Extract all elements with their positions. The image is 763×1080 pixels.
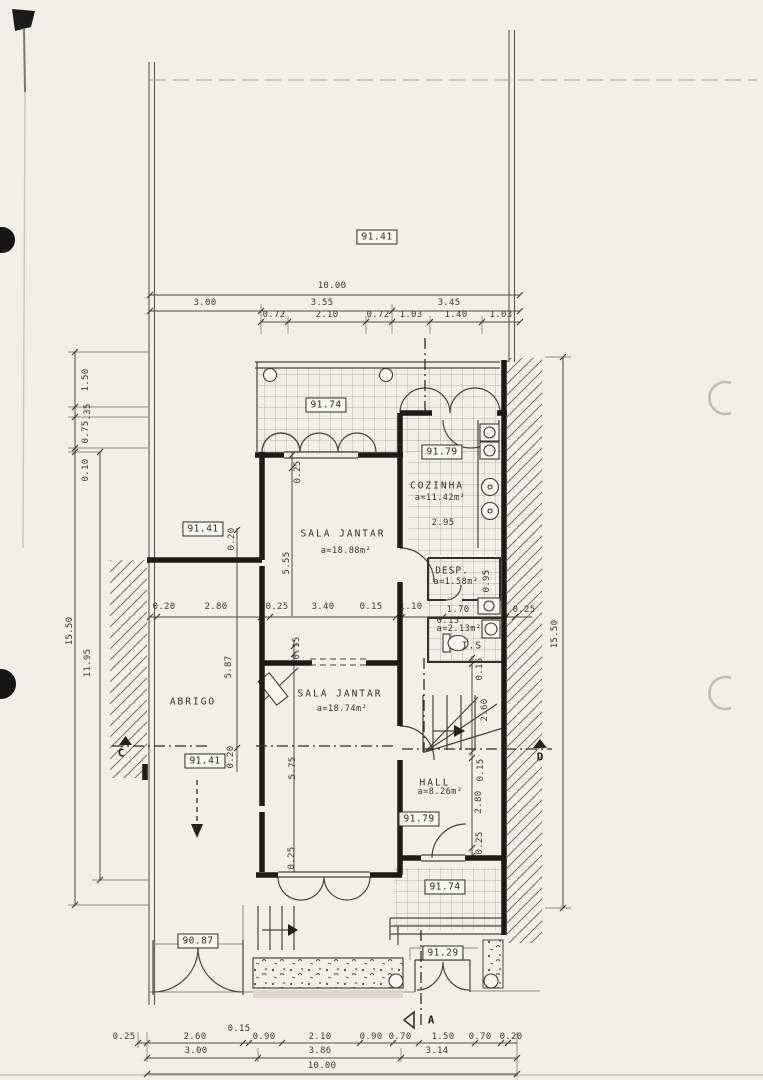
elevation-badge-kitchen: 91.79: [421, 445, 462, 460]
dim-label: 15.50: [65, 617, 75, 646]
floor-plan-drawing: [0, 0, 763, 1080]
dim-label: 0.20: [153, 602, 176, 612]
dim-label: 2.10: [309, 1032, 332, 1042]
dim-label: 1.10: [400, 602, 423, 612]
dim-label: 0.75: [81, 421, 91, 444]
dim-label: 3.45: [438, 298, 461, 308]
room-area-cozinha: a=11.42m²: [415, 493, 466, 503]
scan-artifacts: [0, 9, 763, 1075]
dim-label: 5.75: [288, 757, 298, 780]
elevation-badge-left-upper: 91.41: [182, 522, 223, 537]
dim-label: 0.10: [81, 459, 91, 482]
dim-label: 0.25: [266, 602, 289, 612]
dim-label: 2.95: [432, 518, 455, 528]
dim-label: 0.90: [253, 1032, 276, 1042]
dim-label: 3.00: [185, 1046, 208, 1056]
dim-label: 3.00: [194, 298, 217, 308]
dim-label: 0.25: [513, 605, 536, 615]
dim-label: 0.70: [389, 1032, 412, 1042]
dim-label: 0.15: [476, 759, 486, 782]
dim-label: 0.15: [228, 1024, 251, 1034]
dim-label: 11.95: [83, 649, 93, 678]
scanned-page: 91.41 91.74 91.79 91.41 91.41 91.79 91.7…: [0, 0, 763, 1080]
dim-label: 0.72: [367, 310, 390, 320]
elevation-badge-driveway: 90.87: [177, 934, 218, 949]
room-name-is: I.S: [462, 641, 482, 652]
dim-label: 0.90: [360, 1032, 383, 1042]
dim-label: 0.25: [293, 461, 303, 484]
dim-label: 0.20: [500, 1032, 523, 1042]
dim-label: 1.40: [445, 310, 468, 320]
section-marker-c: C: [118, 747, 125, 760]
elevation-badge-hall: 91.79: [398, 812, 439, 827]
dim-label: 0.20: [227, 528, 237, 551]
dim-label: 3.40: [312, 602, 335, 612]
room-name-cozinha: COZINHA: [410, 481, 464, 492]
dim-label: 0.70: [469, 1032, 492, 1042]
dim-label: 0.25: [475, 832, 485, 855]
dim-label: 1.03: [400, 310, 423, 320]
room-area-sala-upper: a=18.88m²: [321, 546, 372, 556]
dim-label: 5.55: [282, 552, 292, 575]
dim-label: 1.03: [490, 310, 513, 320]
dim-label: 2.10: [316, 310, 339, 320]
dim-label: 15.50: [550, 620, 560, 649]
room-area-hall: a=8.26m²: [418, 787, 463, 797]
dim-label: 0.20: [226, 746, 236, 769]
room-name-sala-upper: SALA JANTAR: [301, 529, 386, 540]
dim-label: 1.50: [81, 369, 91, 392]
dim-label: 0.15: [475, 658, 485, 681]
dim-label: 0.15: [360, 602, 383, 612]
room-area-sala-lower: a=18.74m²: [317, 704, 368, 714]
dim-label: 1.70: [447, 605, 470, 615]
dim-label: 2.80: [474, 791, 484, 814]
dim-label: 10.00: [308, 1061, 337, 1071]
room-name-sala-lower: SALA JANTAR: [298, 689, 383, 700]
dim-label: 0.25: [287, 847, 297, 870]
section-marker-a: A: [428, 1014, 435, 1027]
room-area-desp: a=1.58m²: [434, 577, 479, 587]
elevation-badge-entrance: 91.29: [422, 946, 463, 961]
dim-label: 0.15: [292, 637, 302, 660]
dim-label: 10.00: [318, 281, 347, 291]
dim-label: 2.80: [205, 602, 228, 612]
dim-label: 0.25: [113, 1032, 136, 1042]
room-name-desp: DESP.: [435, 566, 469, 577]
dim-label: 1.50: [432, 1032, 455, 1042]
dim-label: 3.86: [309, 1046, 332, 1056]
dim-label: .35: [83, 403, 93, 420]
dim-label: 2.60: [184, 1032, 207, 1042]
room-name-abrigo: ABRIGO: [170, 697, 216, 708]
dim-label: 3.14: [426, 1046, 449, 1056]
dim-label: 0.95: [482, 570, 492, 593]
dim-label: 2.60: [480, 699, 490, 722]
elevation-badge-terrace-upper: 91.74: [305, 398, 346, 413]
elevation-badge-left-lower: 91.41: [184, 754, 225, 769]
dim-label: 5.87: [224, 656, 234, 679]
dim-label: 3.55: [311, 298, 334, 308]
elevation-badge-site: 91.41: [356, 230, 397, 245]
dim-label: 0.72: [263, 310, 286, 320]
dim-label: 0.15: [437, 616, 460, 626]
elevation-badge-terrace-lower: 91.74: [424, 880, 465, 895]
section-marker-d: D: [537, 751, 544, 764]
